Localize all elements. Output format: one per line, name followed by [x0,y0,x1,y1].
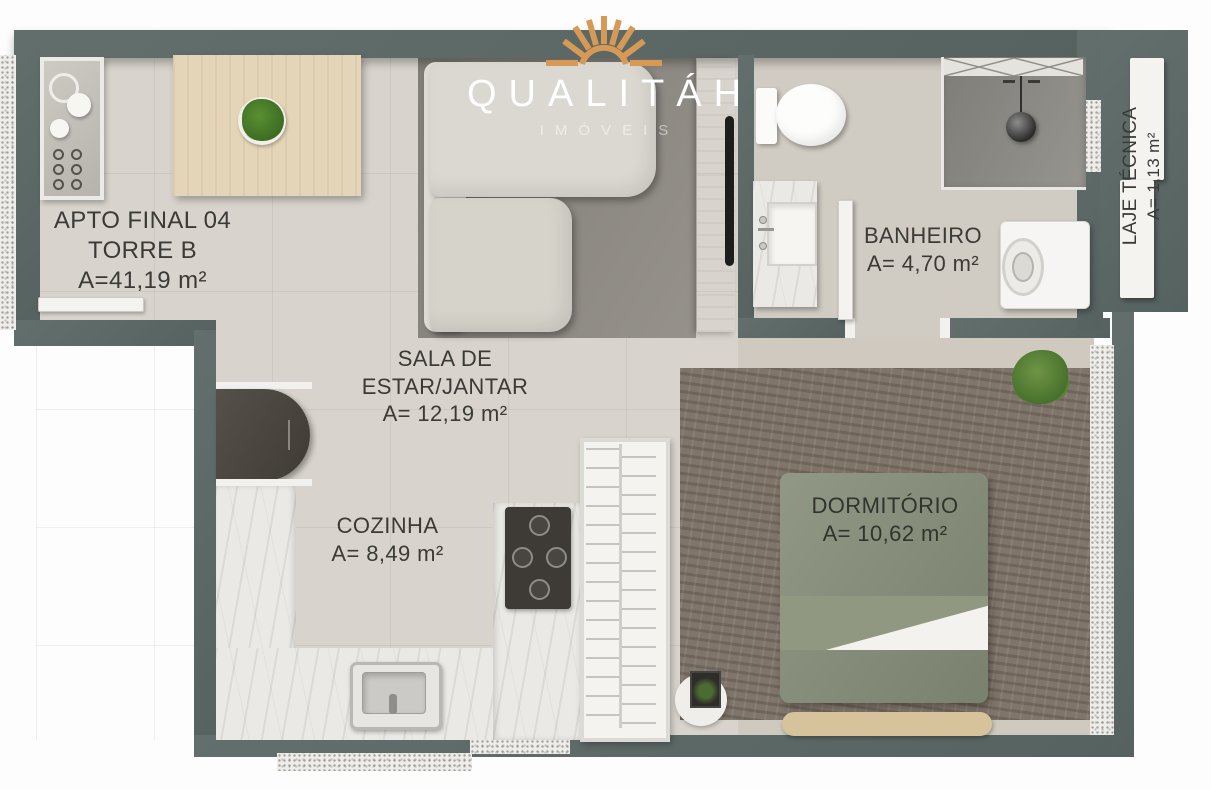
bath-door-jamb-2 [940,318,950,338]
apto-area: A=41,19 m² [35,266,250,296]
sala-area: A= 12,19 m² [345,400,545,428]
room-label-banheiro: BANHEIRO A= 4,70 m² [828,222,1018,277]
sala-line1: SALA DE [345,345,545,373]
fridge-trim-top [216,382,312,389]
bath-door-threshold-left [845,318,950,338]
sideboard-knob [53,179,64,190]
sofa-seat [430,198,572,332]
banheiro-name: BANHEIRO [828,222,1018,250]
cooktop [505,507,571,609]
brand-tagline: IMÓVEIS [455,122,753,139]
bedroom-plant [1012,350,1068,404]
window-kitchen-sill-upper [470,739,570,754]
drying-rack-spine [619,444,622,728]
sideboard [40,57,104,200]
room-label-dormitorio: DORMITÓRIO A= 10,62 m² [780,492,990,547]
window-bedroom [1090,345,1114,735]
window-kitchen-sill-lower [277,753,472,771]
dining-plant [242,99,284,141]
vanity-faucet [758,228,774,231]
sideboard-knob [53,164,64,175]
sideboard-knob [53,149,64,160]
shower-head-icon [1006,112,1036,142]
vanity-knob [759,242,767,250]
apto-line2: TORRE B [35,236,250,266]
laje-name: LAJE TÉCNICA [1119,107,1143,246]
drying-rack-slats-left [586,448,620,724]
brand-logo: QUALITÁH IMÓVEIS [455,14,753,139]
cozinha-name: COZINHA [300,512,475,540]
dormitorio-name: DORMITÓRIO [780,492,990,520]
sideboard-knob [71,149,82,160]
banheiro-area: A= 4,70 m² [828,250,1018,278]
room-label-apto: APTO FINAL 04 TORRE B A=41,19 m² [35,206,250,297]
shower-valve [1003,80,1015,83]
toilet-tank [756,88,777,144]
fridge-handle [288,420,290,450]
wall-kitchen-left [194,330,216,755]
toilet-bowl [776,84,846,146]
sideboard-knob [71,179,82,190]
drying-rack [580,438,670,742]
dormitorio-area: A= 10,62 m² [780,520,990,548]
window-left-exterior [0,55,16,330]
cooktop-burner [546,547,567,568]
sideboard-bowl-large [67,93,91,117]
bedside-decor-plant [690,671,721,708]
sideboard-knob [71,164,82,175]
bed-base [782,712,992,736]
laje-area: A= 1,13 m² [1143,107,1164,246]
cozinha-area: A= 8,49 m² [300,540,475,568]
brand-name: QUALITÁH [455,73,753,116]
wall-bath-divider-left [738,318,845,338]
vanity-knob [759,216,767,224]
apto-line1: APTO FINAL 04 [35,206,250,236]
shower-valve [1028,80,1040,83]
vanity-sink [767,202,817,266]
wall-step [14,320,216,346]
cooktop-burner [529,579,550,600]
sideboard-bowl-small [50,119,69,138]
bath-door-jamb-1 [845,318,855,338]
entry-door [38,297,144,312]
logo-sunburst-icon [544,14,664,71]
sala-line2: ESTAR/JANTAR [345,373,545,401]
cooktop-burner [529,515,550,536]
kitchen-faucet [389,694,397,714]
room-label-laje: LAJE TÉCNICA A= 1,13 m² [1062,96,1211,256]
room-label-cozinha: COZINHA A= 8,49 m² [300,512,475,567]
shower-arm [1020,76,1022,116]
shower-glass-edge-left [941,57,944,190]
floor-plan: LAJE TÉCNICA A= 1,13 m² [0,0,1211,789]
cooktop-burner [512,547,533,568]
fridge-trim-bottom [216,479,312,486]
drying-rack-slats-right [622,456,656,724]
kitchen-fridge [216,389,310,481]
shower-glass [944,58,1083,76]
wall-right [1112,300,1134,750]
room-label-sala: SALA DE ESTAR/JANTAR A= 12,19 m² [345,345,545,428]
